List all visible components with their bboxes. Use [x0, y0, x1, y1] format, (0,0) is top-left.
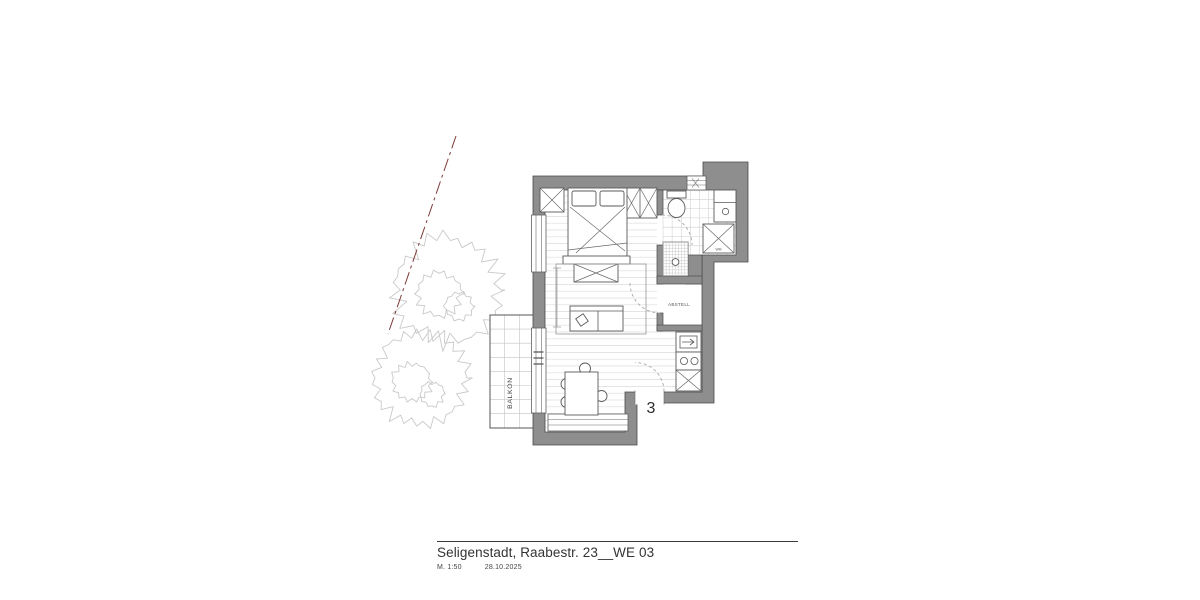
entrance-door-arc — [635, 363, 664, 392]
title-rule — [437, 541, 798, 542]
date-label: 28.10.2025 — [485, 564, 522, 571]
balcony-label: BALKON — [507, 377, 514, 409]
dresser-bench — [574, 264, 618, 282]
living-room-window — [548, 414, 628, 431]
pillow — [572, 191, 596, 206]
kitchen-appliance — [676, 370, 701, 391]
pillow — [600, 191, 624, 206]
title-meta: M. 1:5028.10.2025 — [437, 564, 798, 571]
cooktop — [676, 352, 701, 370]
balcony: BALKON — [490, 315, 534, 428]
bedroom-window — [532, 215, 547, 272]
bed — [568, 188, 627, 258]
project-title: Seligenstadt, Raabestr. 23__WE 03 — [437, 545, 798, 560]
tree-canopy-scribble — [372, 329, 473, 429]
bathroom-door-arc — [662, 215, 692, 245]
balcony-door — [532, 328, 547, 413]
tree-canopy-scribble — [390, 230, 506, 351]
title-block: Seligenstadt, Raabestr. 23__WE 03 M. 1:5… — [437, 541, 798, 571]
tree-canopy-scribble — [420, 382, 445, 408]
property-boundary-line — [388, 136, 456, 334]
dining-table — [565, 372, 598, 415]
drawing-sheet: BALKON — [0, 0, 1200, 600]
washing-machine: WM — [703, 224, 734, 253]
tree-canopy-scribble — [415, 270, 465, 318]
wardrobe-left — [540, 188, 564, 212]
bed-foot-board — [563, 256, 630, 264]
tree-canopies — [372, 230, 506, 428]
bathroom-sink-counter — [714, 190, 736, 222]
tree-canopy-scribble — [392, 361, 433, 402]
apartment-number-label: 3 — [647, 400, 656, 417]
sofa — [570, 306, 623, 331]
fridge — [676, 332, 701, 352]
wardrobe-right — [623, 188, 657, 218]
shower — [663, 242, 688, 276]
top-vent-window — [687, 176, 706, 190]
shower-drain — [672, 259, 679, 266]
storage-room-label: ABSTELL — [668, 302, 690, 307]
washing-machine-label: WM — [715, 248, 721, 252]
toilet — [667, 191, 686, 218]
floor-plan-canvas: BALKON — [0, 0, 1200, 600]
scale-label: M. 1:50 — [437, 564, 462, 571]
